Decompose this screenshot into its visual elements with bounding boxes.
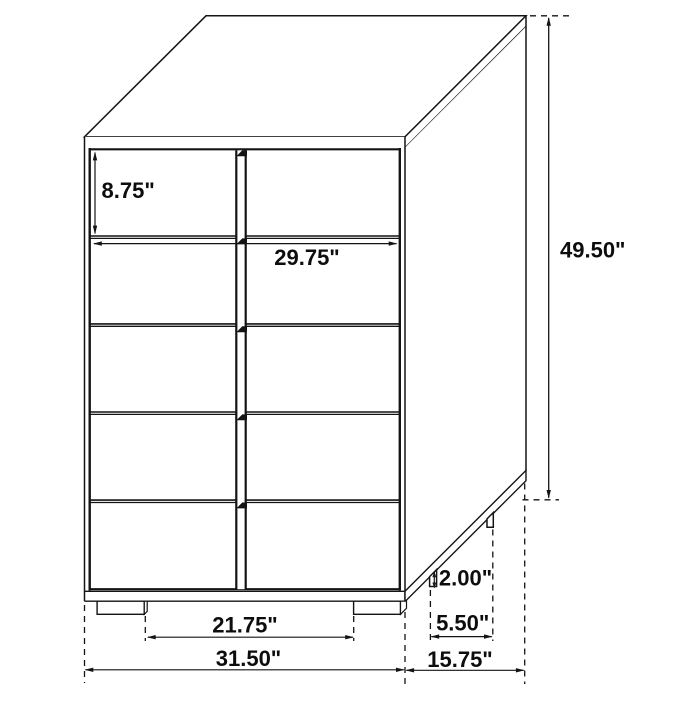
svg-text:5.50": 5.50" — [436, 610, 489, 635]
svg-text:8.75": 8.75" — [102, 178, 155, 203]
svg-text:2.00": 2.00" — [439, 565, 492, 590]
svg-text:49.50": 49.50" — [560, 237, 625, 262]
svg-text:29.75": 29.75" — [274, 245, 339, 270]
svg-text:31.50": 31.50" — [216, 646, 281, 671]
svg-text:15.75": 15.75" — [427, 647, 492, 672]
svg-text:21.75": 21.75" — [212, 612, 277, 637]
